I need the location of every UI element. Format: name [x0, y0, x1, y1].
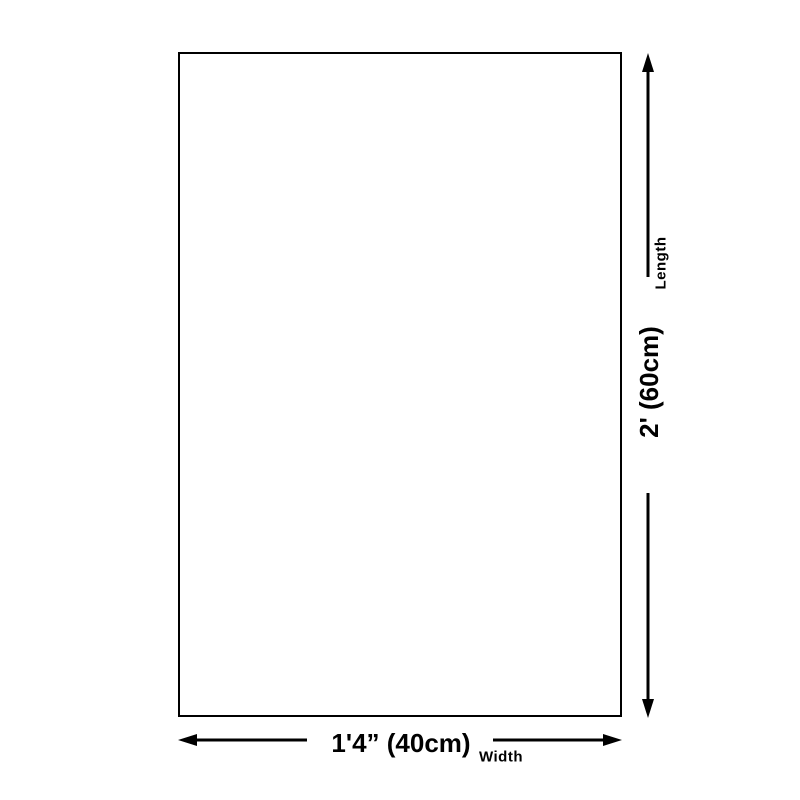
product-dimensions-diagram: Length 2' (60cm) 1'4” (40cm) Width	[0, 0, 800, 800]
arrow-down-icon	[642, 699, 654, 718]
arrow-right-icon	[603, 734, 622, 746]
dimension-arrows	[0, 0, 800, 800]
length-value-label: 2' (60cm)	[636, 326, 662, 438]
length-axis-label: Length	[654, 237, 669, 290]
arrow-up-icon	[642, 53, 654, 72]
arrow-left-icon	[178, 734, 197, 746]
width-axis-label: Width	[479, 750, 523, 765]
width-value-label: 1'4” (40cm)	[331, 730, 470, 756]
